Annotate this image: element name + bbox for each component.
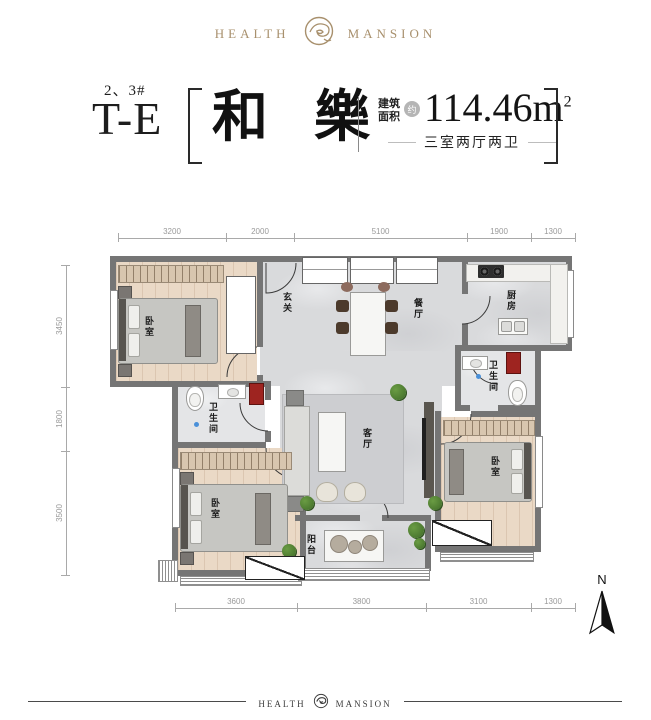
dining-table: [350, 292, 386, 356]
area-label-bottom: 面积: [378, 111, 400, 124]
compass-north-label: N: [597, 572, 606, 587]
wardrobe: [443, 420, 535, 436]
footer-line-right: [404, 701, 622, 702]
brand-health-text: HEALTH: [215, 26, 290, 42]
plant: [390, 384, 406, 400]
bed: [444, 442, 532, 502]
stone-seat: [348, 540, 362, 554]
ac-unit-box: [245, 556, 305, 580]
pillow: [128, 333, 140, 357]
floorplan-page: { "brand": { "left": "HEALTH", "right": …: [0, 0, 651, 720]
armchair: [316, 482, 338, 502]
dim-seg: 3600: [175, 592, 297, 609]
side-table: [286, 390, 304, 406]
area-label: 建筑 面积: [378, 98, 400, 123]
room-label-bath-right: 卫生间: [488, 360, 497, 393]
dim-seg: 2000: [226, 222, 294, 239]
plant: [428, 496, 442, 510]
toilet: [186, 386, 204, 411]
bed: [180, 484, 288, 552]
kitchen-counter: [550, 264, 568, 344]
area-label-top: 建筑: [378, 98, 400, 111]
bed-headboard: [119, 299, 126, 361]
bathroom-sink: [462, 356, 488, 370]
nightstand: [180, 552, 194, 565]
top-dimension-ruler: 3200 2000 5100 1900 1300: [118, 222, 575, 238]
dim-seg: 1800: [50, 387, 67, 451]
dim-seg: 3800: [297, 592, 426, 609]
unit-type: T-E: [92, 96, 162, 142]
coffee-table: [318, 412, 346, 472]
room-label-bedroom-tl: 卧室: [144, 316, 153, 338]
dim-seg: 3200: [118, 222, 226, 239]
washer-cabinet: [249, 383, 264, 405]
wardrobe: [180, 452, 292, 470]
footer-brand-health: HEALTH: [258, 699, 305, 709]
floor-drain: [194, 422, 199, 427]
bottom-dimension-ruler: 3600 3800 3100 1300: [175, 592, 575, 608]
dim-seg: 1300: [531, 222, 575, 239]
area-number: 114.46m: [424, 85, 564, 130]
washer-cabinet: [506, 352, 521, 374]
dim-seg: 1300: [531, 592, 575, 609]
right-bracket: [544, 88, 558, 164]
dim-seg: 3100: [426, 592, 531, 609]
pillow: [511, 449, 523, 470]
room-label-living: 客厅: [362, 428, 371, 450]
nightstand: [118, 364, 132, 377]
dim-seg: 5100: [294, 222, 467, 239]
dining-chair: [336, 300, 349, 312]
room-label-bath-left: 卫生间: [208, 402, 217, 435]
pillow: [128, 305, 140, 329]
stone-seat: [330, 535, 348, 553]
footer-brand-mansion: MANSION: [336, 699, 392, 709]
toilet: [508, 380, 527, 406]
layout-description: 三室两厅两卫: [424, 132, 520, 152]
stove: [478, 265, 504, 278]
layout-description-row: 三室两厅两卫: [388, 132, 556, 152]
floor-drain: [476, 374, 481, 379]
room-label-kitchen: 厨房: [506, 290, 515, 312]
window-nook: [226, 276, 256, 354]
left-dimension-ruler: 3450 1800 3500: [50, 265, 66, 575]
armchair: [344, 482, 366, 502]
floorplan-canvas: 卧室 玄关 餐厅 厨房 卫生间 卫生间 客厅 卧室 阳台 卧室: [110, 256, 580, 586]
brand-emblem-icon: [300, 12, 338, 55]
footer-line-left: [28, 701, 246, 702]
bed-headboard: [524, 443, 531, 499]
decor-item: [378, 282, 390, 292]
area-sup: 2: [564, 94, 572, 111]
bed-bench: [255, 493, 271, 545]
layout-line-left: [388, 142, 416, 143]
dining-chair: [385, 322, 398, 334]
room-label-dining: 餐厅: [413, 298, 422, 320]
stone-seat: [362, 535, 378, 551]
unit-name: 和 樂: [212, 90, 386, 146]
decor-item: [341, 282, 353, 292]
footer-emblem-icon: [312, 692, 330, 715]
title-divider: [358, 96, 359, 152]
footer-logo: HEALTH MANSION: [250, 692, 400, 715]
room-label-bedroom-bl: 卧室: [210, 498, 219, 520]
left-bracket: [188, 88, 202, 164]
dim-seg: 3500: [50, 451, 67, 575]
dim-seg: 3450: [50, 265, 67, 387]
compass: N: [580, 572, 624, 637]
room-label-balcony: 阳台: [306, 534, 315, 556]
tv: [422, 418, 426, 480]
ac-unit-box: [432, 520, 492, 546]
approx-badge: 约: [404, 101, 420, 117]
plant: [408, 522, 424, 538]
bed-headboard: [181, 485, 188, 549]
dim-seg: 1900: [467, 222, 531, 239]
bed-bench: [185, 305, 201, 357]
pillow: [190, 520, 202, 544]
header-logo: HEALTH MANSION: [0, 12, 651, 55]
compass-needle-icon: [582, 587, 622, 637]
room-label-entry: 玄关: [282, 292, 291, 314]
dining-chair: [385, 300, 398, 312]
bed-bench: [449, 449, 464, 495]
bathroom-sink: [218, 384, 246, 399]
wardrobe: [118, 265, 224, 283]
sofa: [284, 406, 310, 496]
room-label-bedroom-br: 卧室: [490, 456, 499, 478]
dining-chair: [336, 322, 349, 334]
plant: [414, 538, 425, 549]
pillow: [190, 492, 202, 516]
pillow: [511, 473, 523, 494]
plant: [300, 496, 314, 510]
brand-mansion-text: MANSION: [348, 26, 437, 42]
bed: [118, 298, 218, 364]
kitchen-sink: [498, 318, 528, 335]
